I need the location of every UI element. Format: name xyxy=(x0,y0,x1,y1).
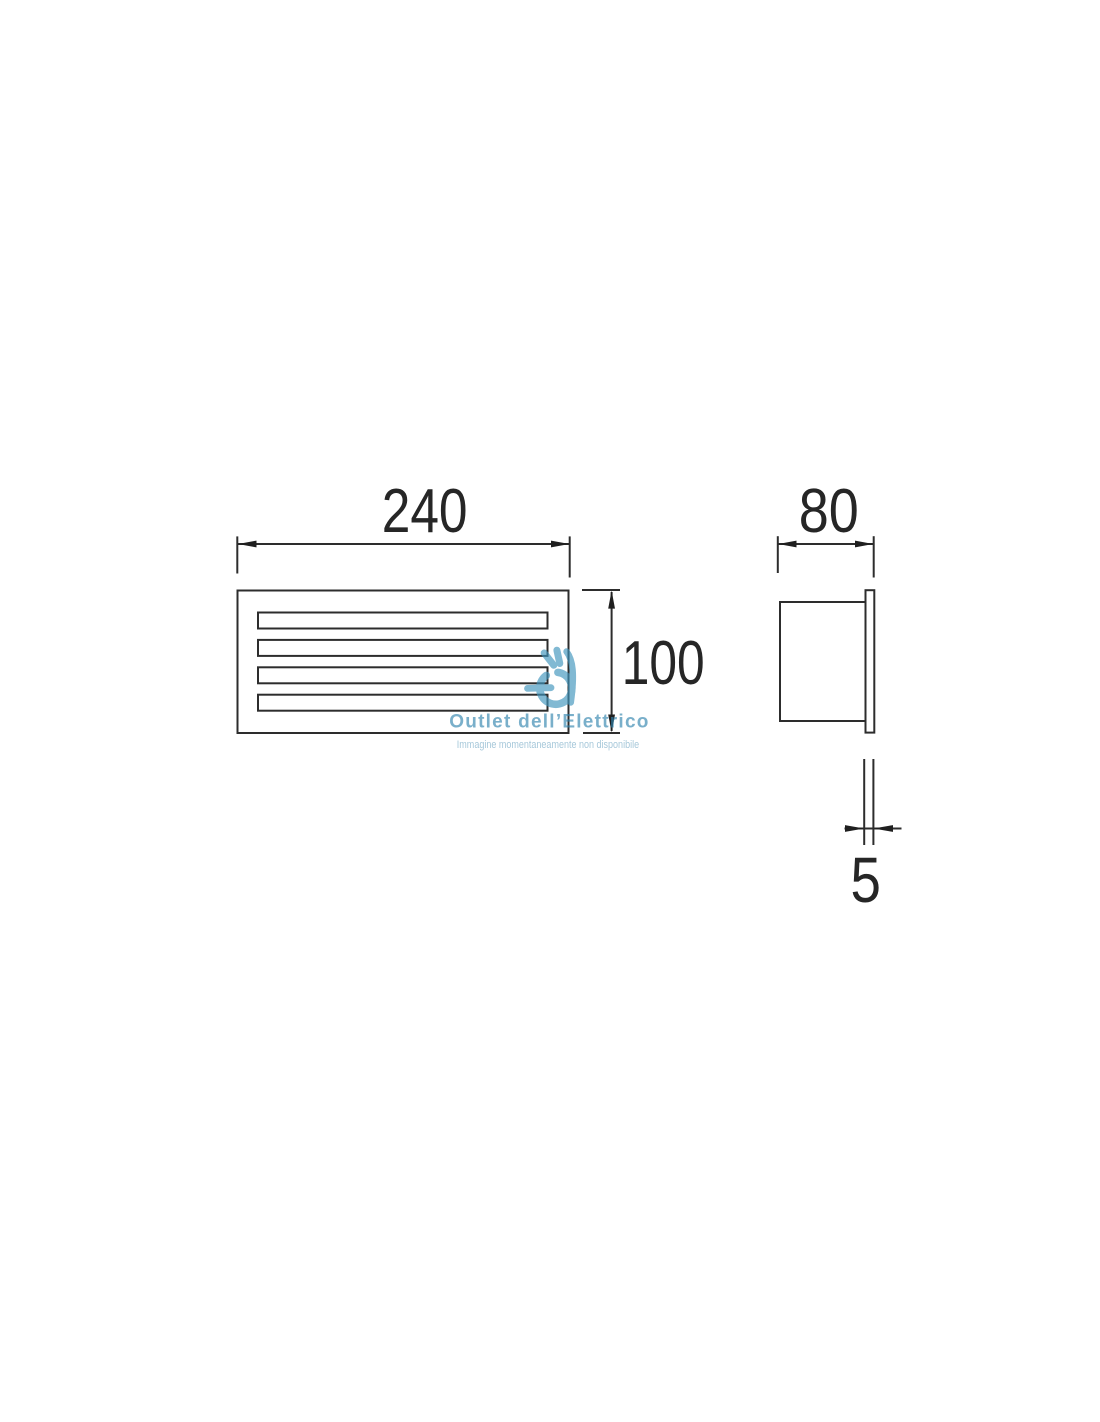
svg-text:5: 5 xyxy=(851,844,881,916)
svg-text:240: 240 xyxy=(382,477,468,547)
svg-text:Outlet dell’Elettrico: Outlet dell’Elettrico xyxy=(449,711,649,732)
svg-text:80: 80 xyxy=(799,477,859,546)
svg-text:Immagine momentaneamente non d: Immagine momentaneamente non disponibile xyxy=(457,739,640,751)
svg-text:100: 100 xyxy=(622,628,705,698)
